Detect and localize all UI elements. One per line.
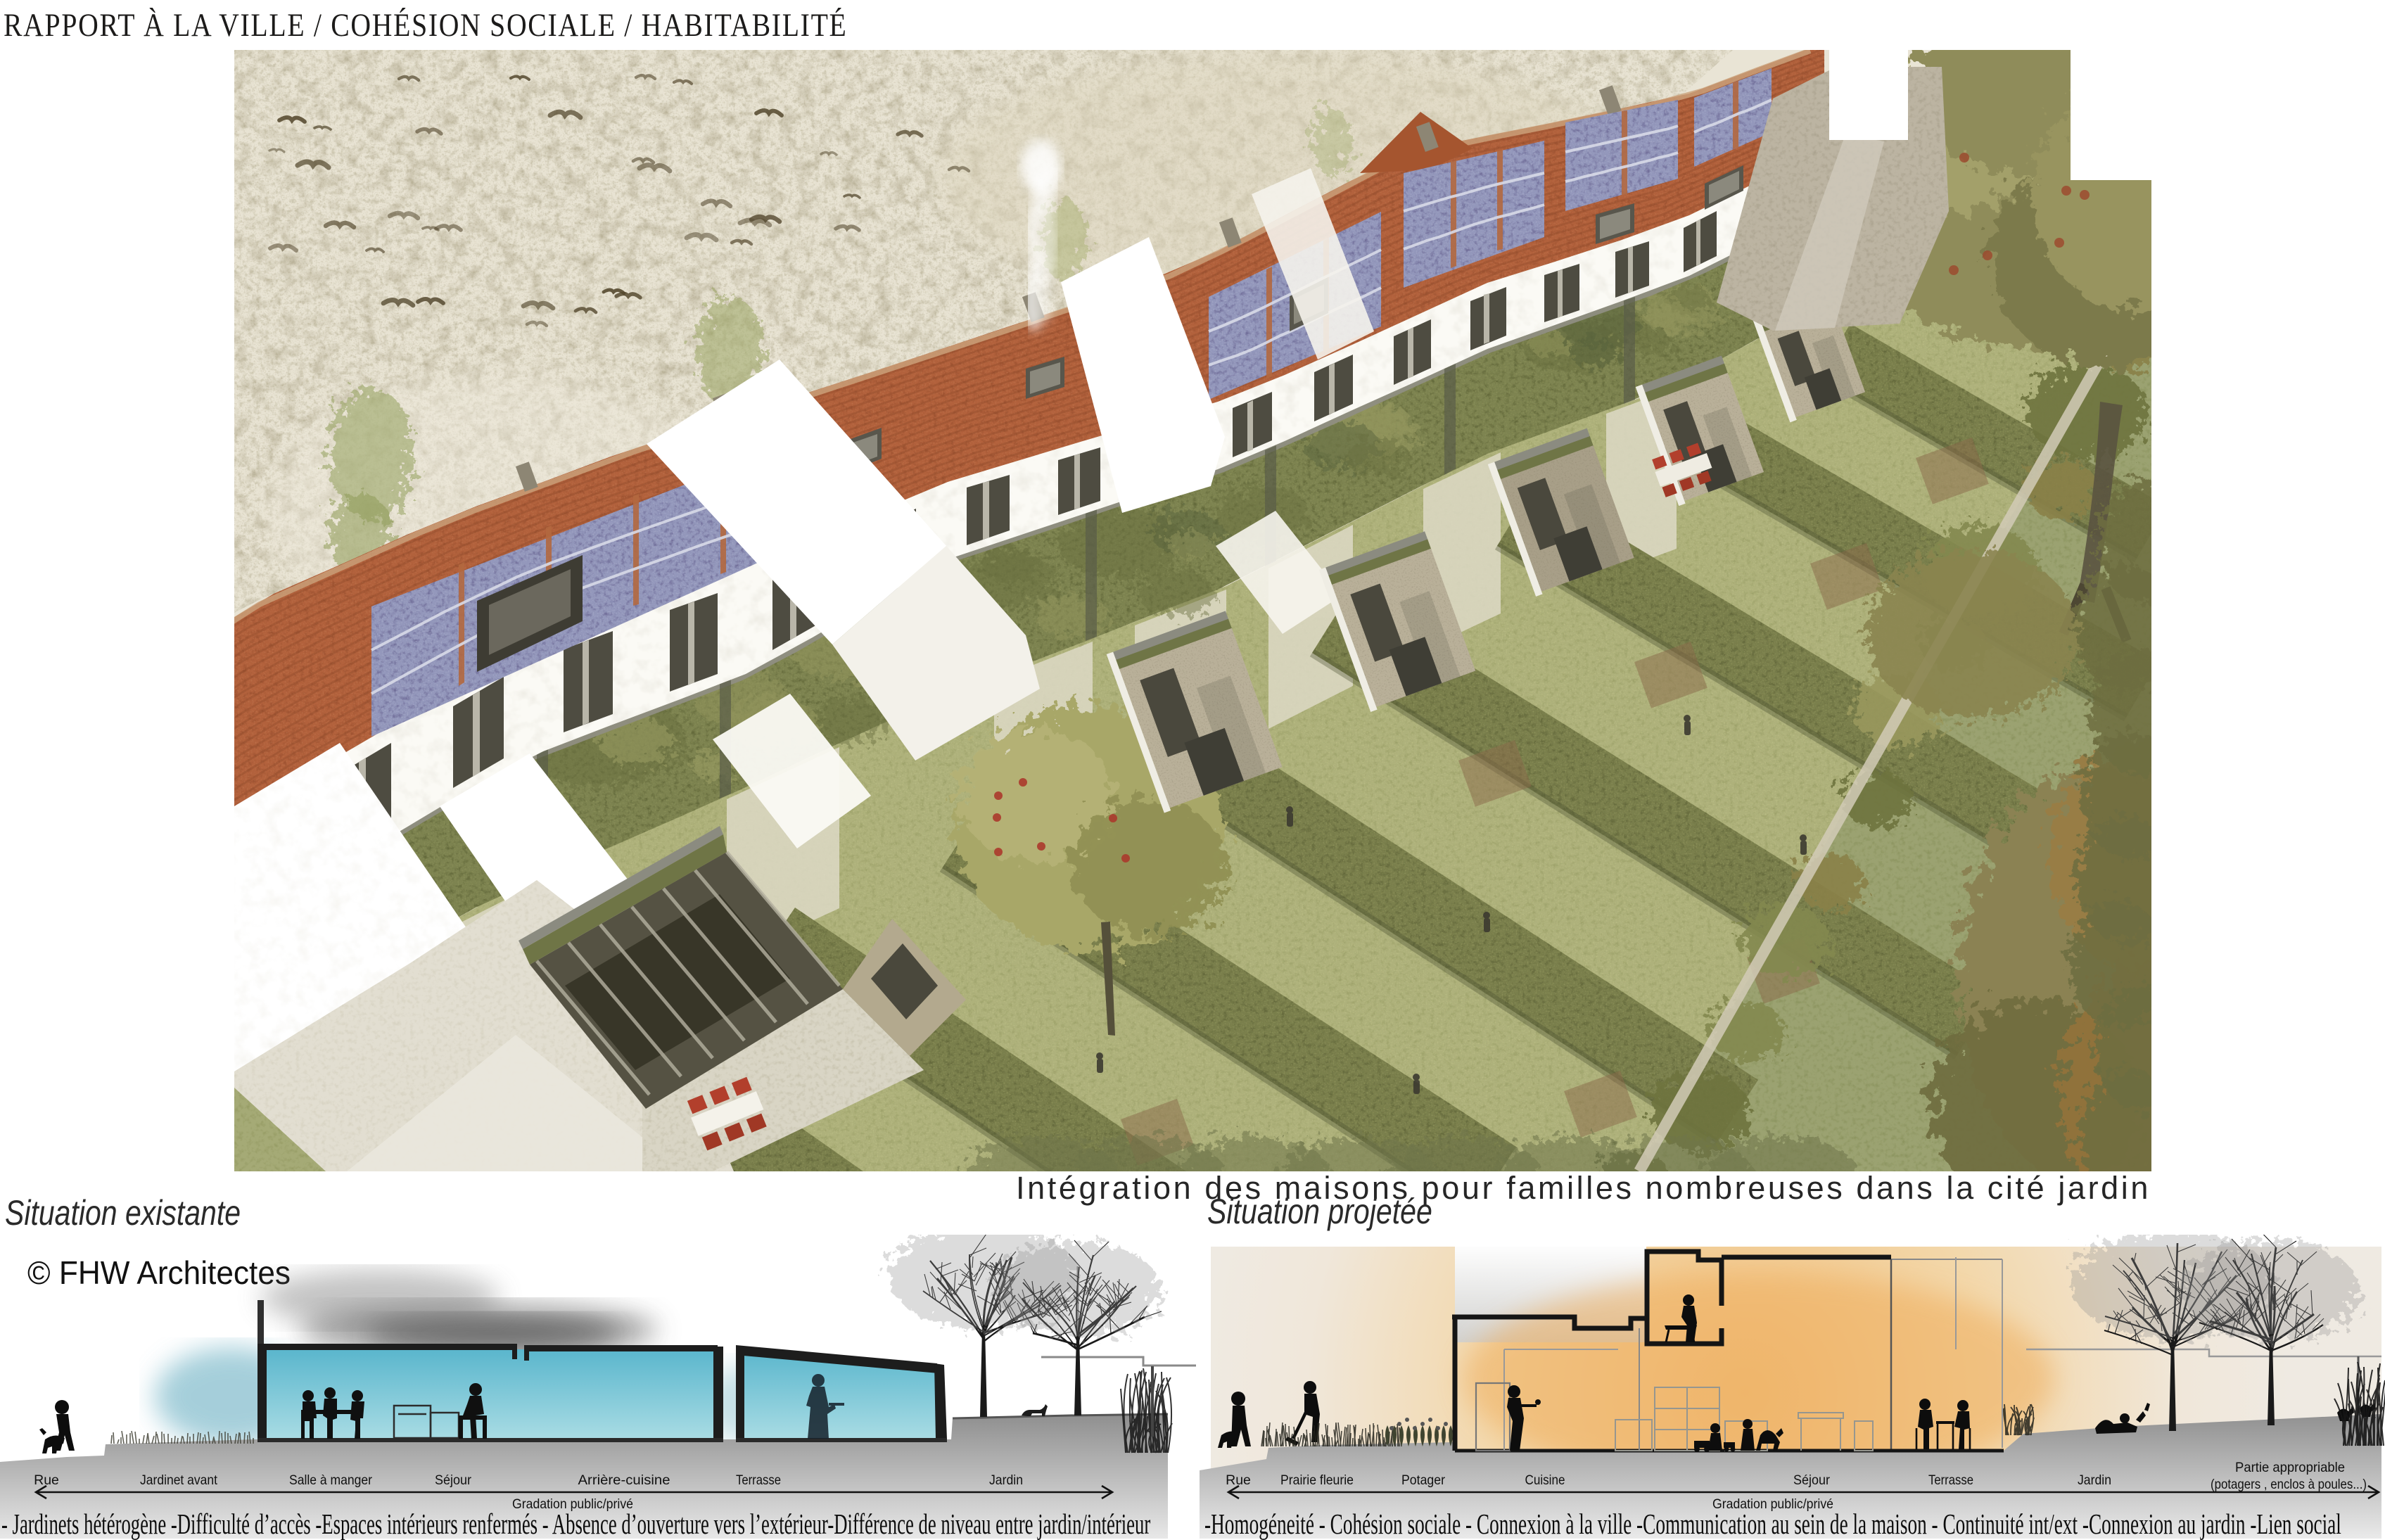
svg-text:Salle à manger: Salle à manger — [289, 1472, 372, 1488]
svg-text:Terrasse: Terrasse — [736, 1472, 781, 1488]
svg-text:Prairie fleurie: Prairie fleurie — [1280, 1472, 1354, 1488]
svg-text:Potager: Potager — [1401, 1472, 1445, 1488]
svg-text:Séjour: Séjour — [435, 1472, 471, 1488]
svg-text:Rue: Rue — [34, 1472, 59, 1488]
svg-text:Cuisine: Cuisine — [1525, 1472, 1565, 1488]
svg-text:Arrière-cuisine: Arrière-cuisine — [578, 1472, 670, 1488]
svg-text:Jardin: Jardin — [989, 1472, 1023, 1488]
svg-text:Jardinet avant: Jardinet avant — [140, 1472, 218, 1488]
svg-text:Terrasse: Terrasse — [1928, 1472, 1973, 1488]
svg-text:Séjour: Séjour — [1793, 1472, 1830, 1488]
svg-text:Partie appropriable: Partie appropriable — [2235, 1460, 2345, 1475]
svg-text:Jardin: Jardin — [2078, 1472, 2111, 1488]
svg-text:(potagers , enclos à poules...: (potagers , enclos à poules...) — [2211, 1477, 2367, 1492]
